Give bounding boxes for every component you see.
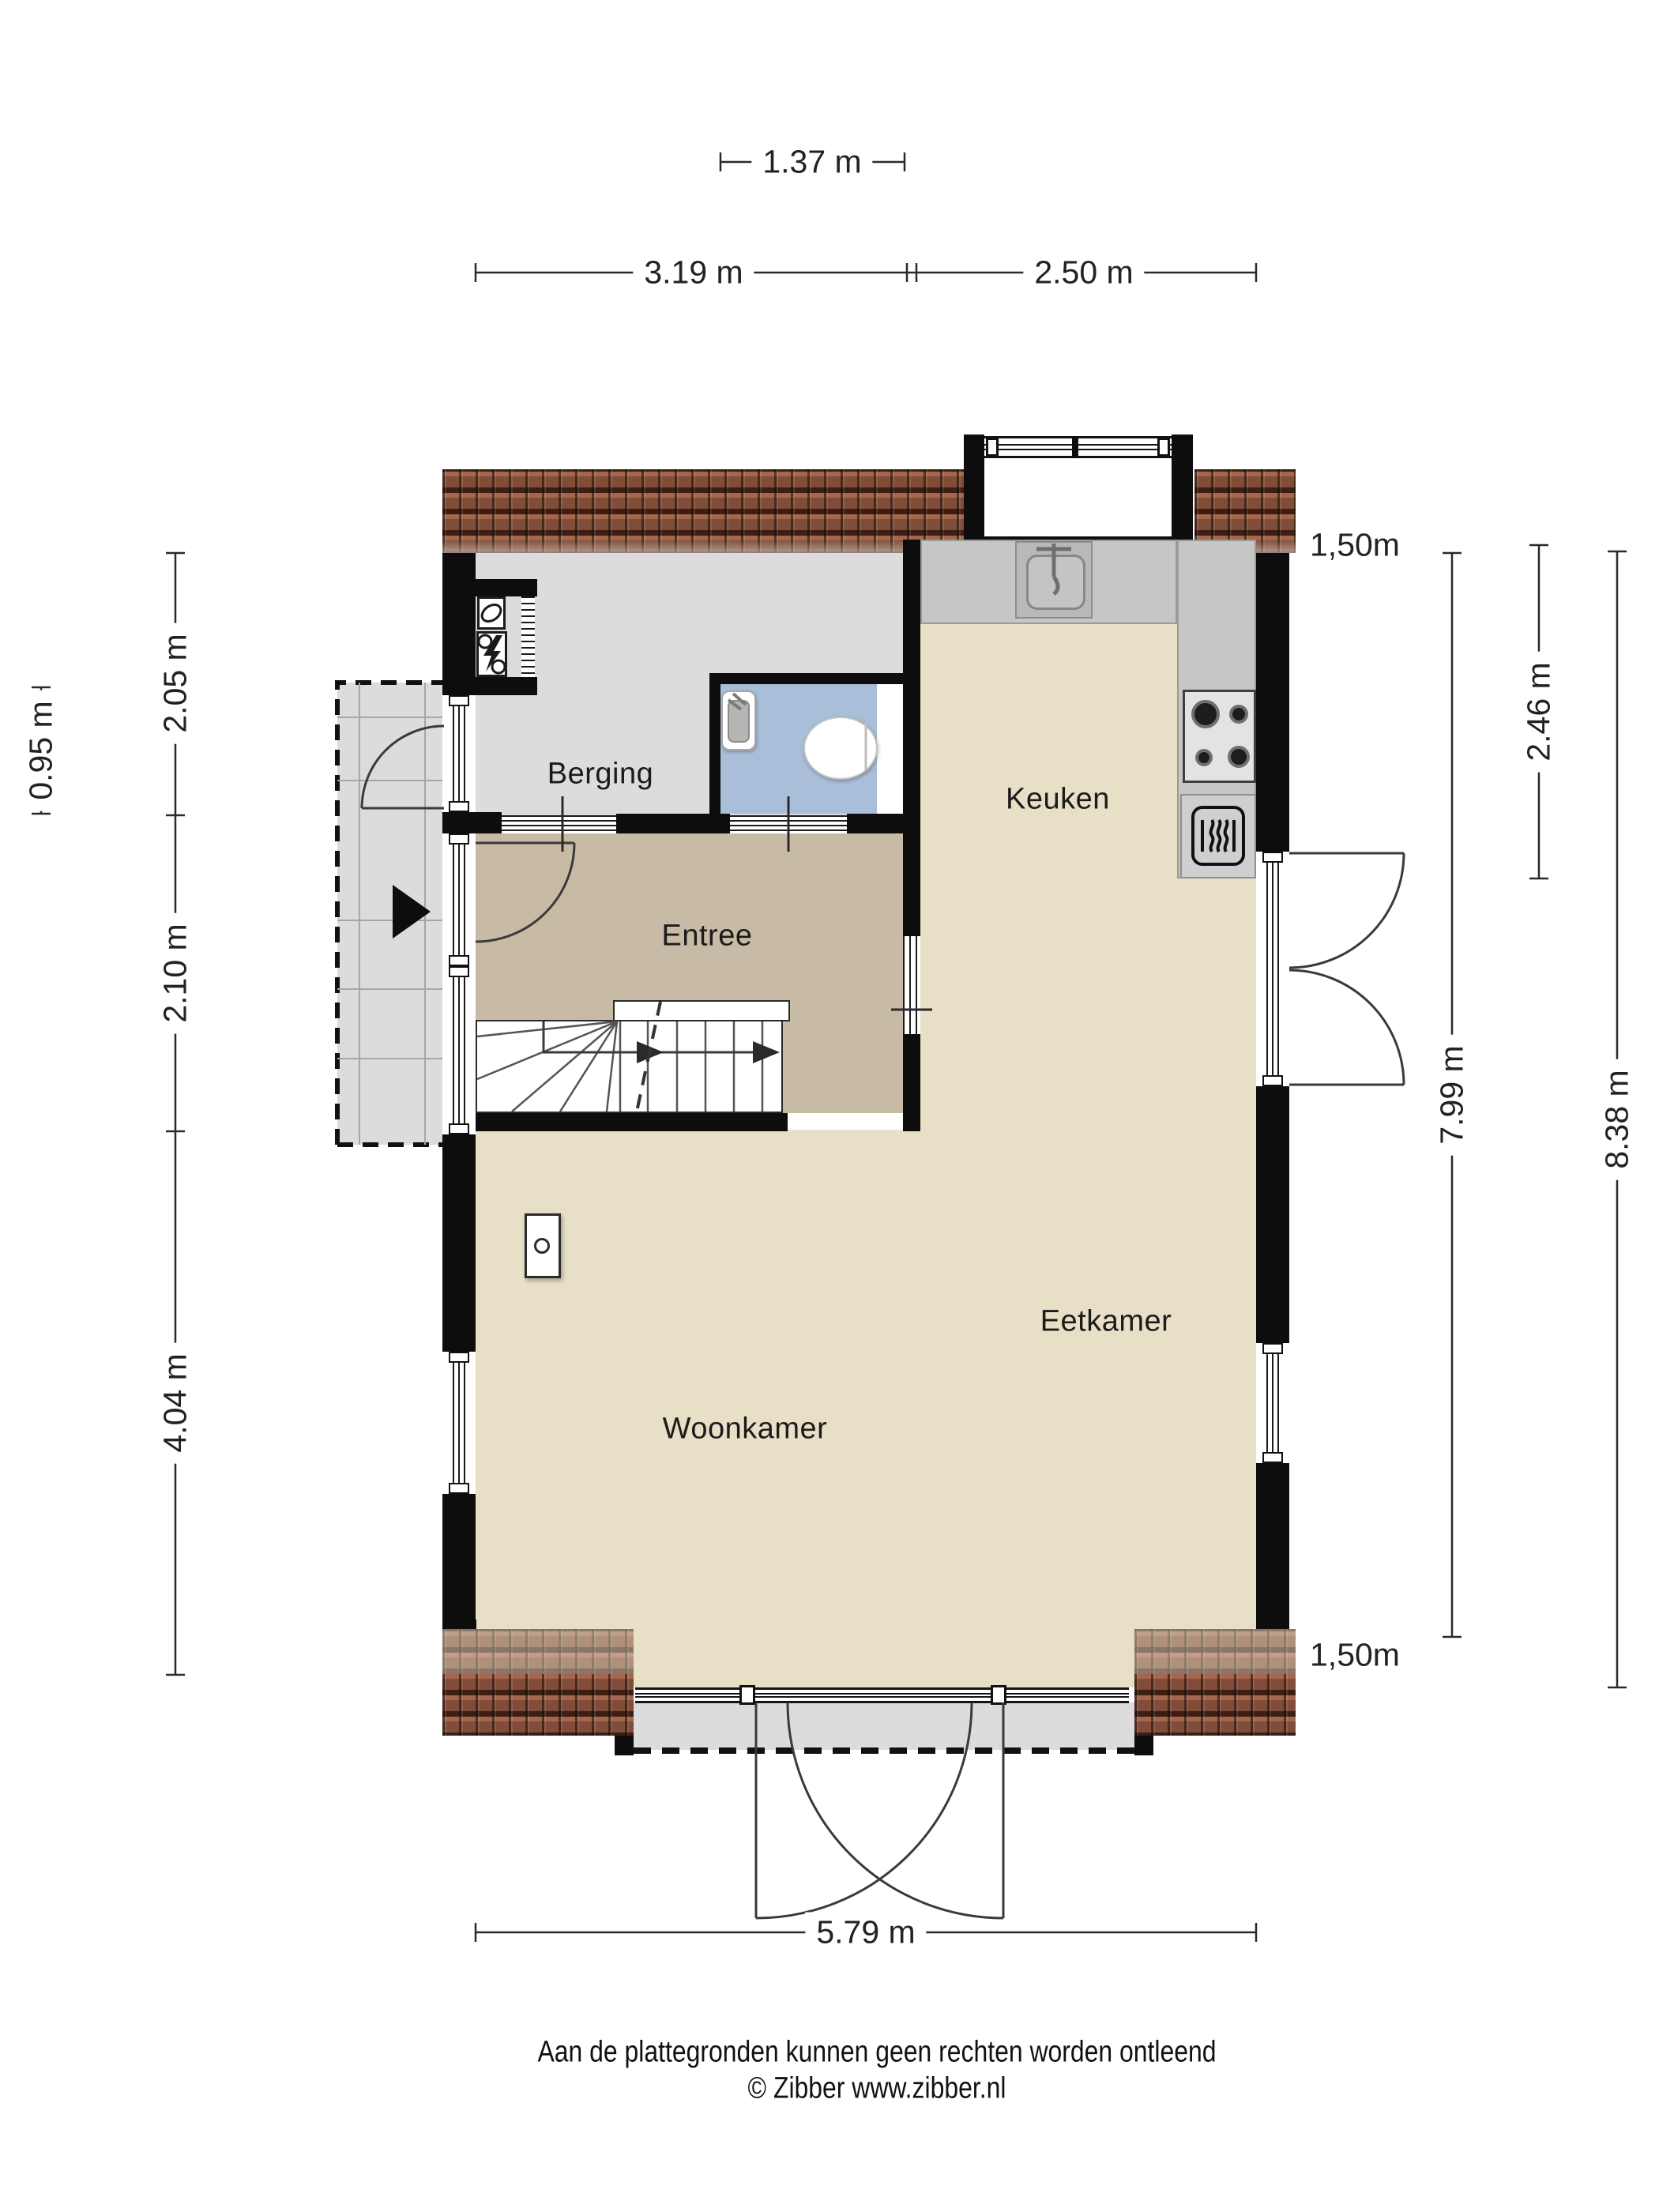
dim-entree-depth: 2.10 m bbox=[156, 912, 196, 1033]
dim-inner-height: 7.99 m bbox=[1432, 1034, 1473, 1155]
electric-panel-glyph bbox=[479, 635, 505, 673]
dim-right-width: 2.50 m bbox=[1023, 253, 1144, 293]
headroom-label-top: 1,50m bbox=[1305, 525, 1405, 566]
glazing-ticks bbox=[562, 796, 932, 1010]
room-label-keuken: Keuken bbox=[1006, 783, 1110, 817]
washbasin-faucet-icon bbox=[728, 694, 746, 709]
oven-glyph bbox=[1193, 807, 1243, 864]
dim-woonkamer-depth: 4.04 m bbox=[156, 1342, 196, 1463]
door-swing-arcs bbox=[362, 726, 1404, 1918]
stairs-treads bbox=[477, 1021, 762, 1112]
disclaimer-text: Aan de plattegronden kunnen geen rechten… bbox=[538, 2036, 1217, 2070]
floorplan-page: Berging Keuken Entree Eetkamer Woonkamer… bbox=[0, 0, 1659, 2212]
room-label-eetkamer: Eetkamer bbox=[1040, 1305, 1172, 1339]
plan-linework bbox=[0, 0, 1659, 2212]
headroom-label-bottom: 1,50m bbox=[1305, 1635, 1405, 1676]
dim-left-width: 3.19 m bbox=[633, 253, 754, 293]
copyright-text: © Zibber www.zibber.nl bbox=[748, 2072, 1006, 2106]
stairs-well-and-arrow bbox=[544, 1021, 780, 1063]
dim-total-height: 8.38 m bbox=[1597, 1059, 1638, 1179]
faucet-icon bbox=[1036, 544, 1071, 594]
room-label-entree: Entree bbox=[662, 920, 753, 954]
dim-bath-width: 1.37 m bbox=[751, 142, 872, 182]
dim-bottom-width: 5.79 m bbox=[805, 1913, 926, 1953]
dim-porch-door: 0.95 m bbox=[21, 690, 62, 811]
water-meter-glyph bbox=[479, 601, 504, 625]
room-label-woonkamer: Woonkamer bbox=[663, 1413, 828, 1446]
dim-berging-depth: 2.05 m bbox=[156, 623, 196, 743]
room-label-berging: Berging bbox=[547, 758, 653, 792]
dim-kitchen-depth: 2.46 m bbox=[1519, 651, 1559, 772]
